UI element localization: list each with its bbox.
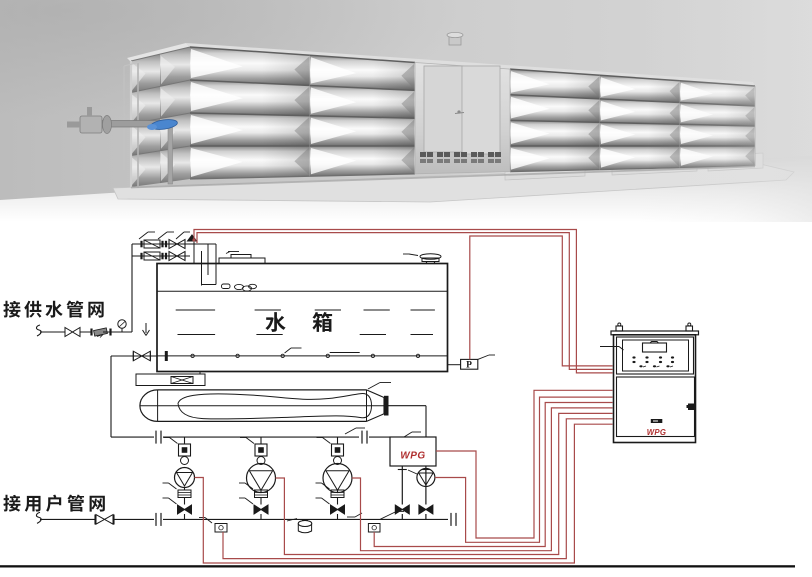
- svg-text:WPG: WPG: [400, 451, 425, 462]
- svg-text:P: P: [466, 361, 472, 371]
- svg-text:WPG: WPG: [647, 428, 667, 437]
